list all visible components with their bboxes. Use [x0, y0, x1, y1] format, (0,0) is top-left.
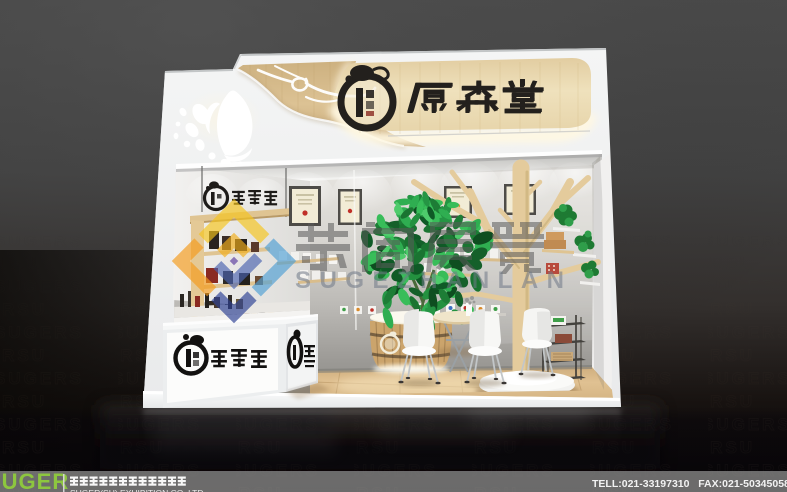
svg-text:SUGER(SH) EXHIBITION CO.,LTD: SUGER(SH) EXHIBITION CO.,LTD [70, 488, 204, 492]
svg-text:SUGER: SUGER [0, 469, 69, 492]
svg-text:TELL:021-33197310 FAX:021-50: TELL:021-33197310 FAX:021-50345058 [592, 478, 787, 490]
svg-text:SUGEZHANLAN: SUGEZHANLAN [295, 267, 573, 294]
